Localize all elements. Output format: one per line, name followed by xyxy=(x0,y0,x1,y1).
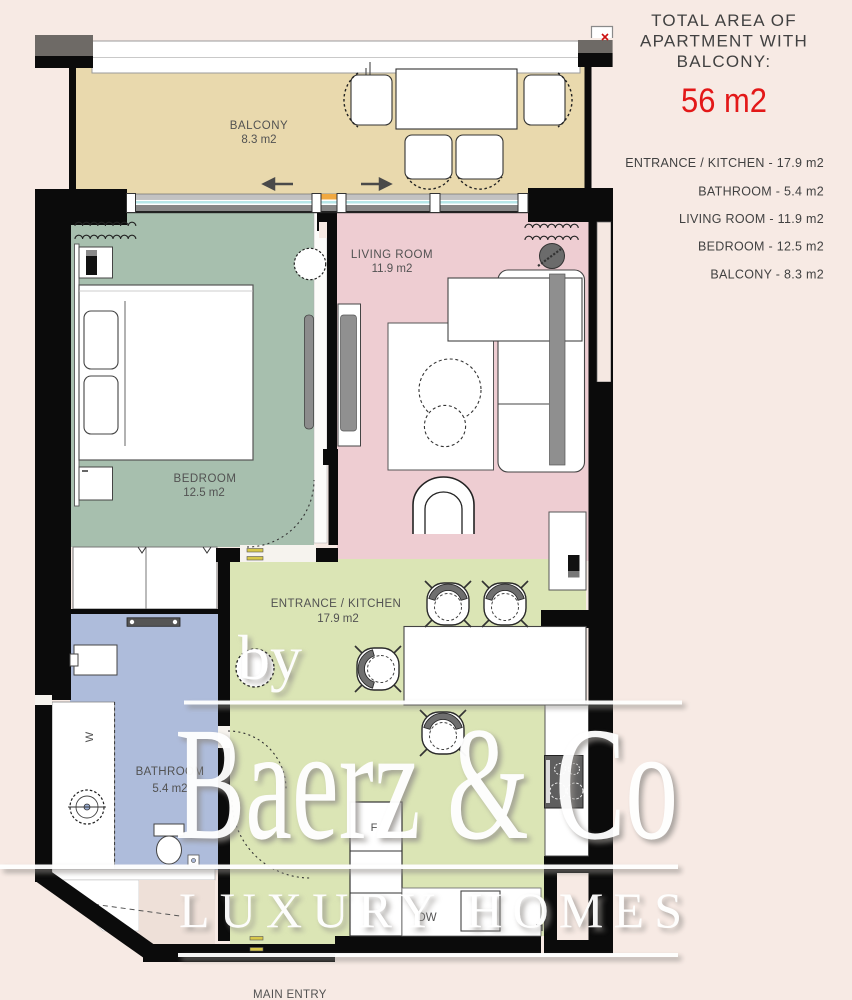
svg-text:by: by xyxy=(238,622,302,693)
svg-text:BALCONY: BALCONY xyxy=(230,120,288,132)
svg-text:17.9 m2: 17.9 m2 xyxy=(317,613,359,625)
svg-text:BALCONY - 8.3 m2: BALCONY - 8.3 m2 xyxy=(710,268,824,282)
svg-text:56 m2: 56 m2 xyxy=(681,82,767,120)
svg-text:W: W xyxy=(84,731,96,742)
svg-text:APARTMENT WITH: APARTMENT WITH xyxy=(640,32,808,51)
svg-text:BATHROOM - 5.4 m2: BATHROOM - 5.4 m2 xyxy=(698,185,824,199)
svg-text:12.5 m2: 12.5 m2 xyxy=(183,487,225,499)
svg-text:BEDROOM: BEDROOM xyxy=(174,473,237,485)
svg-text:MAIN ENTRY: MAIN ENTRY xyxy=(253,989,327,1000)
svg-text:LIVING ROOM - 11.9 m2: LIVING ROOM - 11.9 m2 xyxy=(679,212,824,226)
svg-text:11.9 m2: 11.9 m2 xyxy=(372,263,413,275)
svg-text:TOTAL AREA OF: TOTAL AREA OF xyxy=(651,11,797,30)
svg-text:ENTRANCE / KITCHEN - 17.9 m2: ENTRANCE / KITCHEN - 17.9 m2 xyxy=(625,156,824,170)
svg-text:LIVING ROOM: LIVING ROOM xyxy=(351,249,433,261)
svg-text:ENTRANCE / KITCHEN: ENTRANCE / KITCHEN xyxy=(271,598,402,610)
svg-text:8.3 m2: 8.3 m2 xyxy=(241,134,276,146)
svg-text:Baerz & Co: Baerz & Co xyxy=(175,695,678,874)
svg-text:BALCONY:: BALCONY: xyxy=(677,52,772,71)
svg-text:BEDROOM - 12.5 m2: BEDROOM - 12.5 m2 xyxy=(698,240,824,254)
